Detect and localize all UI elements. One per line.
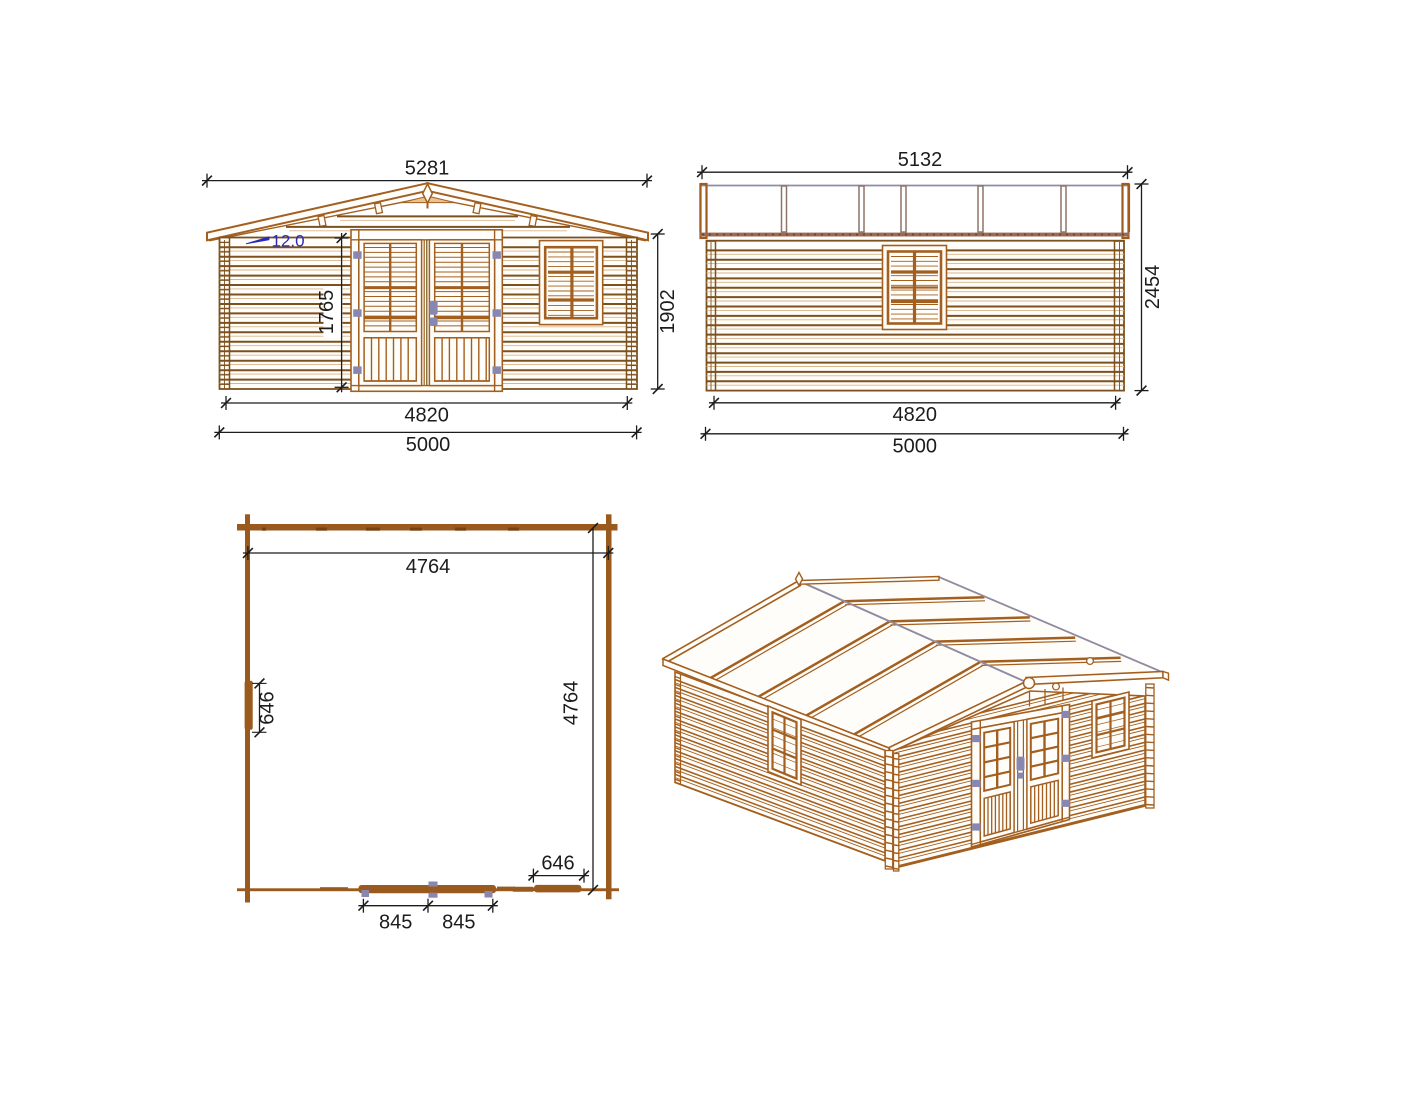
svg-text:4764: 4764 [406, 556, 451, 578]
svg-text:4820: 4820 [404, 405, 449, 427]
svg-text:2454: 2454 [1142, 265, 1164, 310]
svg-text:1765: 1765 [316, 290, 338, 335]
svg-text:12.0: 12.0 [271, 232, 304, 251]
svg-text:5000: 5000 [893, 435, 938, 457]
svg-text:1902: 1902 [657, 289, 679, 334]
svg-text:5000: 5000 [406, 434, 451, 456]
svg-text:646: 646 [541, 853, 574, 875]
svg-text:4764: 4764 [561, 681, 583, 726]
svg-text:5132: 5132 [898, 149, 943, 171]
svg-text:845: 845 [379, 912, 412, 934]
svg-text:4820: 4820 [893, 404, 938, 426]
svg-text:845: 845 [442, 912, 475, 934]
svg-text:646: 646 [257, 691, 279, 724]
svg-text:5281: 5281 [405, 158, 450, 180]
